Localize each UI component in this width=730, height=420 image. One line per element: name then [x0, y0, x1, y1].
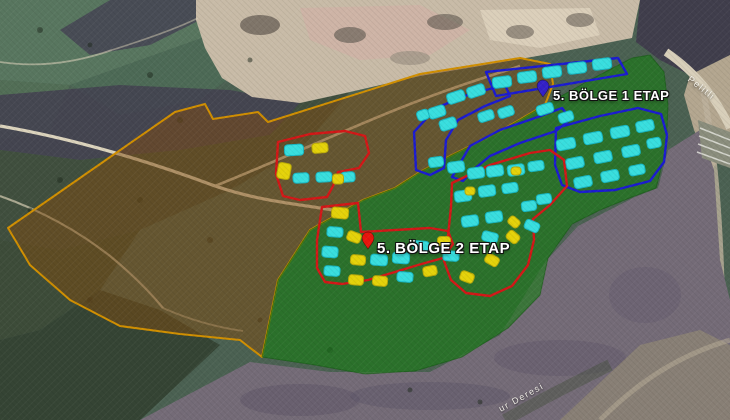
- building-cyan[interactable]: [293, 173, 310, 184]
- building-yellow[interactable]: [511, 167, 521, 175]
- building-cyan[interactable]: [592, 57, 612, 70]
- building-cyan[interactable]: [517, 70, 537, 83]
- building-cyan[interactable]: [478, 184, 496, 197]
- building-cyan[interactable]: [428, 156, 444, 168]
- building-yellow[interactable]: [372, 275, 388, 286]
- building-cyan[interactable]: [527, 160, 544, 172]
- building-cyan[interactable]: [322, 246, 339, 258]
- building-yellow[interactable]: [333, 174, 344, 184]
- building-yellow[interactable]: [465, 187, 475, 195]
- building-cyan[interactable]: [536, 193, 552, 205]
- building-cyan[interactable]: [284, 144, 304, 156]
- building-cyan[interactable]: [542, 65, 562, 78]
- building-yellow[interactable]: [331, 207, 349, 219]
- building-cyan[interactable]: [492, 75, 512, 88]
- building-yellow[interactable]: [348, 274, 364, 285]
- building-cyan[interactable]: [324, 265, 341, 276]
- building-cyan[interactable]: [316, 172, 333, 183]
- building-cyan[interactable]: [461, 214, 479, 227]
- building-yellow[interactable]: [422, 265, 438, 277]
- building-cyan[interactable]: [447, 160, 465, 173]
- zone2-placemark-label[interactable]: 5. BÖLGE 2 ETAP: [377, 240, 510, 257]
- building-cyan[interactable]: [521, 200, 537, 212]
- building-cyan[interactable]: [397, 271, 414, 282]
- building-cyan[interactable]: [485, 210, 503, 223]
- building-cyan[interactable]: [501, 182, 518, 194]
- building-cyan[interactable]: [486, 164, 504, 177]
- building-cyan[interactable]: [646, 137, 662, 149]
- building-yellow[interactable]: [276, 162, 292, 180]
- satellite-terrain: [0, 0, 730, 420]
- zone1-placemark-label[interactable]: 5. BÖLGE 1 ETAP: [553, 88, 669, 103]
- map-view[interactable]: 5. BÖLGE 1 ETAP 5. BÖLGE 2 ETAP Pelitli …: [0, 0, 730, 420]
- building-cyan[interactable]: [567, 61, 587, 74]
- building-yellow[interactable]: [312, 142, 329, 153]
- building-yellow[interactable]: [350, 254, 366, 265]
- building-cyan[interactable]: [327, 226, 344, 237]
- building-cyan[interactable]: [467, 166, 485, 179]
